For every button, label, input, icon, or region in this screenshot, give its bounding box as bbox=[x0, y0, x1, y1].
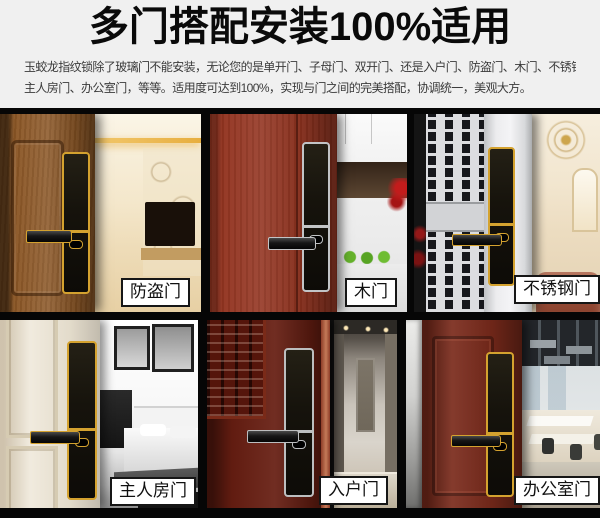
door-type-label: 办公室门 bbox=[514, 476, 600, 505]
side-strip-glass bbox=[406, 320, 422, 508]
tile-security-door: 防盗门 bbox=[0, 114, 201, 312]
lock-divider bbox=[490, 223, 513, 226]
door-handle bbox=[26, 230, 72, 243]
office-windows bbox=[522, 366, 600, 410]
smart-lock bbox=[62, 152, 90, 294]
lock-panel bbox=[67, 341, 97, 500]
corridor-wall-right bbox=[385, 334, 397, 474]
corridor-ceiling-lights bbox=[334, 320, 397, 334]
door-panel-molding-lower bbox=[6, 446, 58, 508]
door-panel-molding-upper bbox=[6, 320, 58, 438]
door-handle bbox=[247, 430, 299, 443]
page-title: 多门搭配安装100%适用 bbox=[0, 4, 600, 50]
smart-lock bbox=[302, 142, 330, 292]
television bbox=[145, 202, 195, 246]
arched-alcove bbox=[572, 168, 598, 232]
door-seam bbox=[296, 114, 298, 312]
chandelier bbox=[544, 118, 588, 162]
door-type-label: 防盗门 bbox=[121, 278, 190, 307]
smart-lock bbox=[486, 352, 514, 497]
door-handle bbox=[30, 431, 80, 444]
lock-panel bbox=[62, 152, 90, 294]
office-chairs bbox=[542, 438, 554, 454]
description-line-2: 主人房门、办公室门，等等。适用度可达到100%，实现与门之间的完美搭配，协调统一… bbox=[24, 78, 576, 99]
description-line-1: 玉蛟龙指纹锁除了玻璃门不能安装，无论您的是单开门、子母门、双开门、还是入户门、防… bbox=[24, 57, 576, 78]
smart-lock bbox=[488, 147, 515, 286]
smart-lock bbox=[67, 341, 97, 500]
hanging-light-panels bbox=[530, 340, 556, 348]
tile-stainless-steel-door: 不锈钢门 bbox=[414, 114, 600, 312]
lattice-panel bbox=[207, 320, 266, 419]
door-molding bbox=[432, 336, 494, 496]
hanging-glasses bbox=[345, 114, 389, 144]
door-type-label: 主人房门 bbox=[110, 477, 196, 506]
door-type-label: 木门 bbox=[345, 278, 397, 307]
pillows bbox=[140, 424, 166, 436]
description: 玉蛟龙指纹锁除了玻璃门不能安装，无论您的是单开门、子母门、双开门、还是入户门、防… bbox=[0, 57, 600, 99]
lock-panel bbox=[284, 348, 314, 497]
lock-panel bbox=[302, 142, 330, 292]
tile-master-bedroom-door: 主人房门 bbox=[0, 320, 198, 508]
desk-tops bbox=[526, 416, 593, 426]
green-apples bbox=[341, 250, 405, 264]
header: 多门搭配安装100%适用 玉蛟龙指纹锁除了玻璃门不能安装，无论您的是单开门、子母… bbox=[0, 0, 600, 108]
tile-wooden-door: 木门 bbox=[210, 114, 407, 312]
tile-entry-door: 入户门 bbox=[207, 320, 397, 508]
steel-mid-band bbox=[426, 202, 484, 232]
lock-panel bbox=[488, 147, 515, 286]
door-handle bbox=[452, 234, 502, 246]
corridor-depth bbox=[356, 358, 375, 432]
wall-picture-2 bbox=[152, 324, 194, 372]
wall-picture-1 bbox=[114, 326, 150, 370]
door-handle bbox=[268, 237, 316, 250]
ceiling-cove-light bbox=[95, 138, 201, 143]
door-type-label: 不锈钢门 bbox=[514, 275, 600, 304]
lock-panel bbox=[486, 352, 514, 497]
door-molding bbox=[11, 140, 64, 296]
tile-office-door: 办公室门 bbox=[406, 320, 600, 508]
corridor-wall-left bbox=[334, 334, 344, 474]
door-type-label: 入户门 bbox=[319, 476, 388, 505]
door-handle bbox=[451, 435, 501, 447]
side-strip-flowers bbox=[414, 114, 426, 312]
red-flowers bbox=[387, 178, 407, 212]
tv-stand bbox=[141, 248, 201, 260]
promo-page: 多门搭配安装100%适用 玉蛟龙指纹锁除了玻璃门不能安装，无论您的是单开门、子母… bbox=[0, 0, 600, 518]
smart-lock bbox=[284, 348, 314, 497]
lock-divider bbox=[304, 225, 328, 228]
